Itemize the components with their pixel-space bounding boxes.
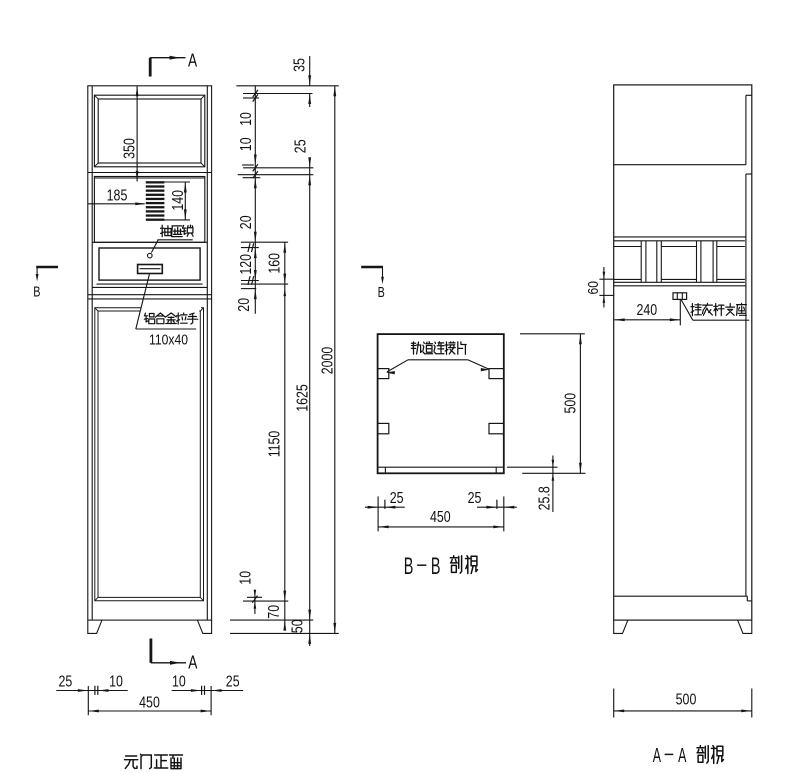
- svg-text:A: A: [678, 744, 687, 767]
- svg-text:120: 120: [237, 254, 255, 275]
- svg-text:500: 500: [561, 393, 579, 414]
- svg-text:450: 450: [139, 693, 160, 711]
- svg-text:20: 20: [235, 298, 253, 312]
- svg-text:60: 60: [585, 281, 602, 295]
- svg-text:A: A: [188, 51, 197, 71]
- svg-text:10: 10: [109, 672, 123, 690]
- svg-text:35: 35: [290, 58, 308, 72]
- svg-text:350: 350: [120, 138, 138, 159]
- svg-text:450: 450: [430, 507, 451, 525]
- svg-text:10: 10: [237, 137, 255, 151]
- svg-text:140: 140: [169, 190, 187, 211]
- svg-text:160: 160: [265, 253, 283, 274]
- svg-text:1625: 1625: [293, 384, 311, 412]
- svg-text:B: B: [378, 283, 385, 300]
- svg-text:10: 10: [172, 672, 186, 690]
- svg-text:B: B: [33, 283, 40, 300]
- svg-text:25: 25: [226, 672, 240, 690]
- svg-text:25: 25: [291, 139, 309, 153]
- svg-text:25: 25: [468, 489, 482, 507]
- svg-text:25.8: 25.8: [535, 486, 553, 510]
- svg-text:185: 185: [107, 186, 128, 204]
- svg-text:10: 10: [236, 571, 254, 585]
- svg-text:70: 70: [265, 605, 283, 619]
- svg-text:50: 50: [288, 619, 306, 633]
- svg-text:240: 240: [636, 301, 657, 319]
- svg-text:A: A: [188, 653, 197, 673]
- svg-text:1150: 1150: [265, 431, 283, 458]
- svg-text:B: B: [404, 553, 414, 580]
- svg-text:500: 500: [676, 690, 697, 708]
- svg-text:110x40: 110x40: [149, 331, 188, 348]
- svg-text:2000: 2000: [318, 347, 336, 375]
- svg-text:10: 10: [237, 112, 255, 126]
- svg-text:20: 20: [237, 215, 255, 229]
- svg-text:25: 25: [390, 489, 404, 507]
- svg-text:A: A: [653, 744, 662, 767]
- svg-text:25: 25: [59, 672, 73, 690]
- svg-text:B: B: [431, 553, 441, 580]
